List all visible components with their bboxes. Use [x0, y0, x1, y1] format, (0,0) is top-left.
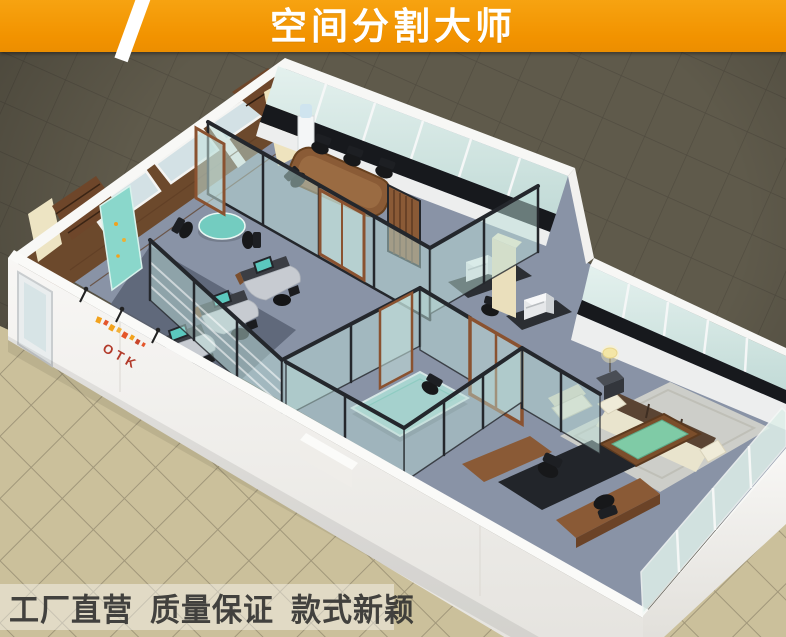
top-banner: 空间分割大师	[0, 0, 786, 52]
round-glass-table	[199, 213, 245, 239]
reception-chair	[242, 231, 261, 249]
tagline-bar: 工厂直营 质量保证 款式新颖	[0, 584, 394, 630]
banner-title: 空间分割大师	[0, 0, 786, 52]
office-render: OTK	[0, 0, 786, 637]
wood-glass-door	[196, 128, 224, 214]
tagline-item-styles: 款式新颖	[291, 584, 415, 630]
product-poster: OTK 空间分割大师 工厂直营 质量保证 款式新颖	[0, 0, 786, 637]
tagline-item-quality: 质量保证	[150, 584, 274, 630]
tagline-item-factory-direct: 工厂直营	[9, 584, 133, 630]
wood-glass-door	[380, 293, 412, 388]
